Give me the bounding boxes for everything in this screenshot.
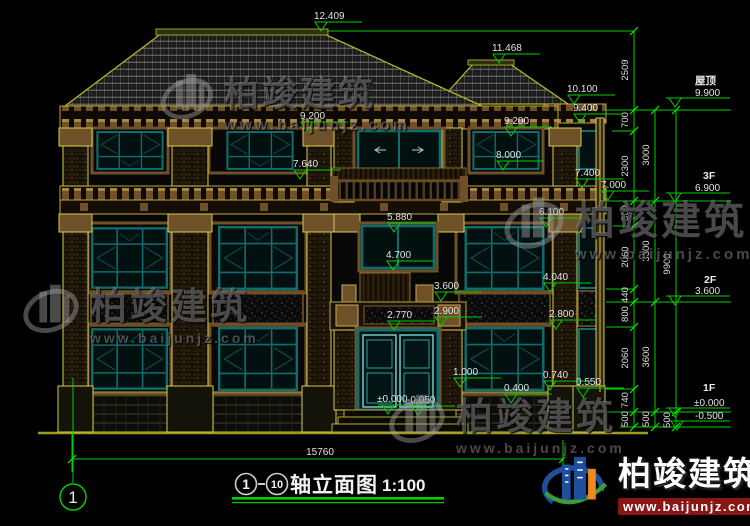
svg-text:9.400: 9.400 bbox=[573, 103, 598, 114]
balcony-railing bbox=[332, 182, 466, 200]
svg-text:±0.000: ±0.000 bbox=[694, 398, 725, 409]
window-2f-c bbox=[466, 227, 544, 289]
svg-text:3300: 3300 bbox=[641, 240, 652, 261]
window-3f-b bbox=[227, 132, 292, 169]
svg-text:屋顶: 屋顶 bbox=[695, 75, 716, 87]
svg-text:2509: 2509 bbox=[620, 59, 631, 80]
level-roof: 屋顶9.900 bbox=[666, 75, 730, 107]
svg-text:2300: 2300 bbox=[620, 155, 631, 176]
svg-text:3000: 3000 bbox=[641, 144, 652, 165]
svg-text:2.900: 2.900 bbox=[434, 306, 459, 317]
svg-text:9.200: 9.200 bbox=[300, 111, 325, 122]
svg-text:7.400: 7.400 bbox=[575, 168, 600, 179]
svg-text:2060: 2060 bbox=[620, 347, 631, 368]
svg-text:11.468: 11.468 bbox=[492, 43, 522, 54]
svg-text:±0.000: ±0.000 bbox=[377, 394, 408, 405]
window-1f-a bbox=[92, 329, 167, 388]
svg-text:3.600: 3.600 bbox=[695, 286, 720, 297]
balcony-deck-band bbox=[332, 168, 466, 180]
cad-elevation-drawing: 12.409 11.468 10.100 9.400 9.200 9.200 8… bbox=[0, 0, 750, 526]
svg-text:-0.050: -0.050 bbox=[407, 395, 436, 406]
svg-text:9900: 9900 bbox=[662, 253, 673, 274]
svg-text:7.000: 7.000 bbox=[601, 180, 626, 191]
svg-text:2F: 2F bbox=[704, 274, 717, 286]
svg-text:8.000: 8.000 bbox=[496, 150, 521, 161]
entrance-steps bbox=[332, 410, 468, 432]
svg-text:1: 1 bbox=[68, 488, 77, 507]
porch-column-left bbox=[334, 330, 356, 410]
svg-text:9.200: 9.200 bbox=[504, 116, 529, 127]
svg-text:1.000: 1.000 bbox=[453, 367, 478, 378]
pilaster-pier-1 bbox=[167, 128, 213, 432]
louver-panel bbox=[360, 273, 410, 302]
svg-text:1F: 1F bbox=[703, 382, 716, 394]
window-2f-a bbox=[92, 228, 167, 287]
svg-text:7.640: 7.640 bbox=[293, 159, 318, 170]
drawing-title: 轴立面图 bbox=[290, 473, 378, 497]
svg-text:2.770: 2.770 bbox=[387, 310, 412, 321]
window-3f-wing bbox=[579, 131, 598, 169]
svg-text:6.900: 6.900 bbox=[695, 183, 720, 194]
window-1f-b bbox=[219, 328, 297, 390]
svg-text:10: 10 bbox=[271, 479, 283, 491]
svg-text:9.900: 9.900 bbox=[695, 88, 720, 99]
svg-text:2060: 2060 bbox=[620, 246, 631, 267]
drawing-scale: 1:100 bbox=[382, 476, 425, 495]
svg-text:0.400: 0.400 bbox=[504, 383, 529, 394]
window-2f-wing bbox=[579, 228, 597, 288]
svg-text:500: 500 bbox=[662, 412, 673, 428]
svg-text:5.880: 5.880 bbox=[387, 212, 412, 223]
pilaster-pier-2 bbox=[302, 128, 336, 432]
svg-text:12.409: 12.409 bbox=[314, 11, 345, 22]
svg-text:10.100: 10.100 bbox=[567, 84, 598, 95]
svg-text:6.100: 6.100 bbox=[539, 207, 564, 218]
svg-text:4.040: 4.040 bbox=[543, 272, 568, 283]
svg-text:1: 1 bbox=[242, 476, 250, 492]
axis-bubble: 1 bbox=[60, 484, 86, 510]
svg-text:4.700: 4.700 bbox=[386, 250, 411, 261]
svg-text:700: 700 bbox=[620, 112, 631, 128]
pilaster-left-corner bbox=[58, 128, 93, 432]
svg-text:3F: 3F bbox=[703, 170, 716, 182]
svg-text:500: 500 bbox=[641, 411, 652, 427]
svg-text:500: 500 bbox=[620, 411, 631, 427]
title-bar: 1 10 轴立面图 1:100 bbox=[232, 473, 444, 503]
svg-text:0.740: 0.740 bbox=[543, 370, 568, 381]
svg-text:3600: 3600 bbox=[641, 346, 652, 367]
svg-text:440: 440 bbox=[620, 287, 631, 303]
svg-text:2.800: 2.800 bbox=[549, 309, 574, 320]
window-2f-b bbox=[219, 227, 297, 289]
ground-dimension-text: 15760 bbox=[306, 447, 334, 458]
window-1f-c bbox=[466, 328, 544, 390]
roof-main bbox=[65, 29, 482, 106]
svg-text:740: 740 bbox=[620, 392, 631, 408]
dimension-chain-labels: 2509 700 2300 800 2060 440 800 2060 740 … bbox=[620, 59, 673, 428]
svg-text:3.600: 3.600 bbox=[434, 281, 459, 292]
window-3f-a bbox=[97, 132, 162, 169]
elevation-svg: 12.409 11.468 10.100 9.400 9.200 9.200 8… bbox=[0, 0, 750, 526]
svg-text:800: 800 bbox=[620, 205, 631, 221]
svg-text:0.550: 0.550 bbox=[576, 377, 601, 388]
svg-text:800: 800 bbox=[620, 306, 631, 322]
svg-text:-0.500: -0.500 bbox=[695, 411, 724, 422]
